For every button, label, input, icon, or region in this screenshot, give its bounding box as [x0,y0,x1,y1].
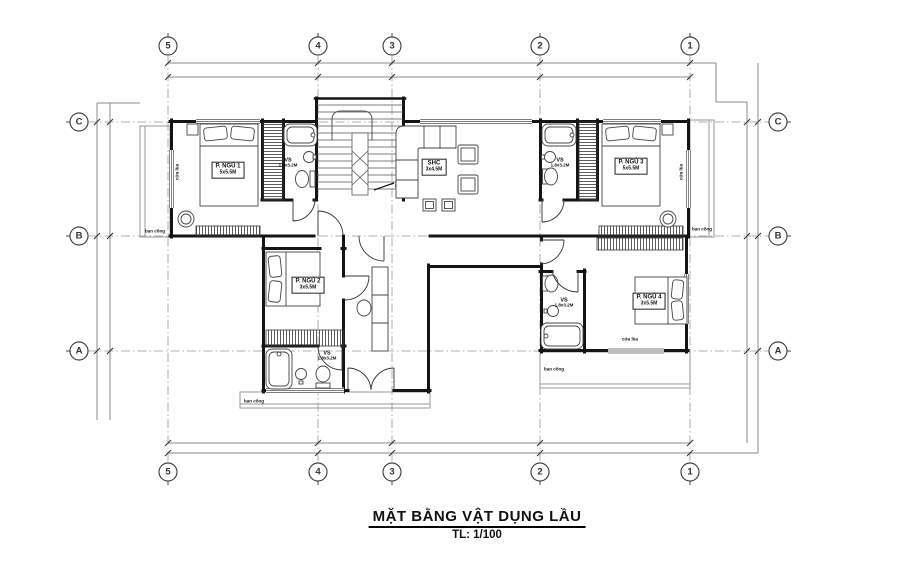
room-label-vs1: VS 1.8x3.2M [279,158,298,169]
door-balcony-right-leaf [371,368,394,390]
door-vs2 [542,200,564,222]
bathtub-vs1 [284,124,317,146]
room-dims: 1.8x3.2M [551,164,570,169]
room-label-bedroom3: P. NGỦ 3 5x5.5M [615,158,648,175]
grid-col-5-bottom: 5 [165,467,170,478]
room-dims: 3x5.5M [296,286,321,292]
room-label-vs2: VS 1.8x3.2M [551,158,570,169]
grid-row-a-right: A [775,346,782,357]
window-top-living [420,119,532,125]
door-corridor [540,240,564,264]
ottoman [442,199,455,211]
grid-col-2: 2 [537,41,542,52]
room-dims: 3x5.5M [637,302,662,308]
balcony-label-middle: ban công [244,399,264,404]
grid-row-c-left: C [76,117,83,128]
title-block: MẶT BẰNG VẬT DỤNG LẦU TL: 1/100 [369,508,586,541]
room-label-vs4: VS 1.8x3.2M [555,298,574,309]
desk [372,267,388,351]
room-dims: 1.8x3.2M [318,357,337,362]
grid-row-b-right: B [775,231,782,242]
sliding-door-label-bedroom1: cửa lùa [175,164,180,180]
room-dims: 5x5.5M [216,171,241,177]
desk-chair [357,300,371,316]
armchair [458,175,478,194]
round-table-bedroom1 [178,211,194,227]
sink-vs3 [296,369,307,385]
sliding-door-bedroom4 [608,348,664,354]
grid-row-b-left: B [76,231,83,242]
toilet-vs4 [543,275,559,292]
grid-col-3: 3 [389,41,394,52]
room-dims: 5x5.5M [619,167,644,173]
sliding-door-bedroom3 [686,150,692,208]
room-label-vs3: VS 1.8x3.2M [318,351,337,362]
grid-col-1: 1 [687,41,692,52]
room-label-living: SHC 3x4.5M [422,159,447,176]
grid-bubbles [66,33,791,485]
armchair [458,145,478,164]
staircase [317,105,403,195]
toilet-vs2 [543,168,558,185]
grid-lines [88,56,769,462]
door-bedroom2 [345,276,369,300]
room-dims: 1.8x3.2M [279,164,298,169]
grid-col-5: 5 [165,41,170,52]
room-label-bedroom4: P. NGỦ 4 3x5.5M [633,293,666,310]
room-label-bedroom2: P. NGỦ 2 3x5.5M [292,277,325,294]
ottoman [423,199,436,211]
door-bedroom1 [318,211,343,236]
door-balcony-left-leaf [348,368,371,390]
room-dims: 1.8x3.2M [555,304,574,309]
grid-row-a-left: A [76,346,83,357]
toilet-vs3 [316,366,330,388]
balcony-label-right: ban công [692,227,712,232]
bathtub-vs4 [541,323,583,349]
door-hall [359,236,384,261]
balcony-label-rightwing: ban công [544,367,564,372]
toilet-vs1 [296,171,316,188]
grid-col-4: 4 [315,41,320,52]
balcony-label-left: ban công [145,229,165,234]
sliding-door-label-bedroom3: cửa lùa [679,164,684,180]
plan-drawing [0,0,900,573]
grid-col-2-bottom: 2 [537,467,542,478]
bathtub-vs2 [542,124,576,146]
grid-col-4-bottom: 4 [315,467,320,478]
grid-col-3-bottom: 3 [389,467,394,478]
room-label-bedroom1: P. NGỦ 1 5x5.5M [212,162,245,179]
floor-plan: 5 4 3 2 1 5 4 3 2 1 C B A C B A P. NGỦ 1… [0,0,900,573]
door-vs1 [293,199,315,221]
bathtub-vs3 [266,349,292,389]
drawing-title: MẶT BẰNG VẬT DỤNG LẦU [369,508,586,528]
drawing-scale: TL: 1/100 [369,529,586,541]
grid-row-c-right: C [775,117,782,128]
grid-col-1-bottom: 1 [687,467,692,478]
sink-vs1 [304,152,317,163]
sliding-door-label-bedroom4: cửa lùa [622,337,638,342]
round-table-bedroom3 [660,211,676,227]
room-dims: 3x4.5M [426,168,443,174]
